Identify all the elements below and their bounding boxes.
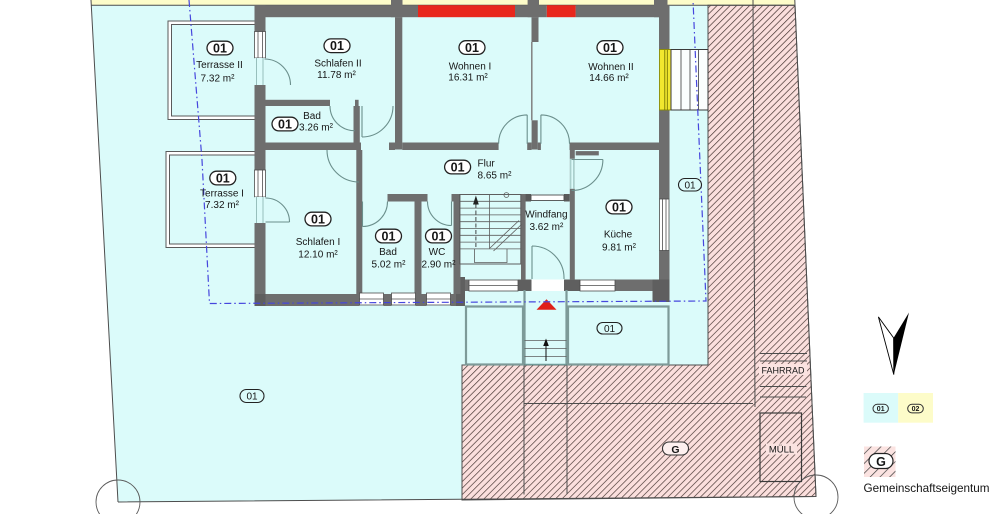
svg-text:Windfang: Windfang <box>525 210 567 221</box>
svg-text:Schlafen II: Schlafen II <box>314 59 361 70</box>
svg-text:Terrasse II: Terrasse II <box>196 60 243 71</box>
svg-text:Gemeinschaftseigentum: Gemeinschaftseigentum <box>864 482 990 495</box>
svg-text:12.10 m²: 12.10 m² <box>298 249 338 260</box>
svg-text:3.26 m²: 3.26 m² <box>299 123 334 134</box>
svg-text:11.78 m²: 11.78 m² <box>317 70 356 81</box>
svg-text:01: 01 <box>684 180 696 191</box>
svg-text:01: 01 <box>213 41 227 55</box>
svg-text:Wohnen I: Wohnen I <box>449 62 492 73</box>
svg-text:WC: WC <box>429 247 446 258</box>
svg-text:Flur: Flur <box>478 159 496 170</box>
svg-text:Bad: Bad <box>379 247 397 258</box>
svg-text:MÜLL: MÜLL <box>769 445 794 456</box>
svg-text:01: 01 <box>604 324 616 335</box>
svg-text:01: 01 <box>877 406 885 413</box>
svg-text:01: 01 <box>330 39 344 53</box>
svg-text:FAHRRAD: FAHRRAD <box>761 366 805 376</box>
svg-text:01: 01 <box>603 41 617 55</box>
svg-text:2.90 m²: 2.90 m² <box>422 260 457 271</box>
svg-text:01: 01 <box>278 117 292 131</box>
svg-text:8.65 m²: 8.65 m² <box>478 171 513 182</box>
svg-text:01: 01 <box>465 41 479 55</box>
svg-text:9.81 m²: 9.81 m² <box>602 243 637 254</box>
svg-text:01: 01 <box>311 212 325 226</box>
svg-text:16.31 m²: 16.31 m² <box>448 72 488 83</box>
svg-text:01: 01 <box>451 160 465 174</box>
svg-text:Schlafen I: Schlafen I <box>296 237 340 248</box>
svg-text:01: 01 <box>432 229 446 243</box>
svg-text:01: 01 <box>612 200 626 214</box>
svg-text:G: G <box>671 444 679 456</box>
svg-text:7.32 m²: 7.32 m² <box>205 200 240 211</box>
svg-text:G: G <box>876 455 886 469</box>
svg-text:14.66 m²: 14.66 m² <box>589 73 629 84</box>
svg-text:02: 02 <box>912 406 920 413</box>
svg-text:3.62 m²: 3.62 m² <box>529 222 564 233</box>
svg-text:Terrasse I: Terrasse I <box>200 189 244 200</box>
svg-text:01: 01 <box>246 392 258 403</box>
svg-text:Bad: Bad <box>303 111 321 122</box>
svg-text:7.32 m²: 7.32 m² <box>201 74 236 85</box>
svg-text:5.02 m²: 5.02 m² <box>372 260 407 271</box>
svg-text:01: 01 <box>216 171 230 185</box>
svg-text:Küche: Küche <box>604 230 633 241</box>
svg-text:Wohnen II: Wohnen II <box>588 62 633 73</box>
svg-text:01: 01 <box>382 229 396 243</box>
